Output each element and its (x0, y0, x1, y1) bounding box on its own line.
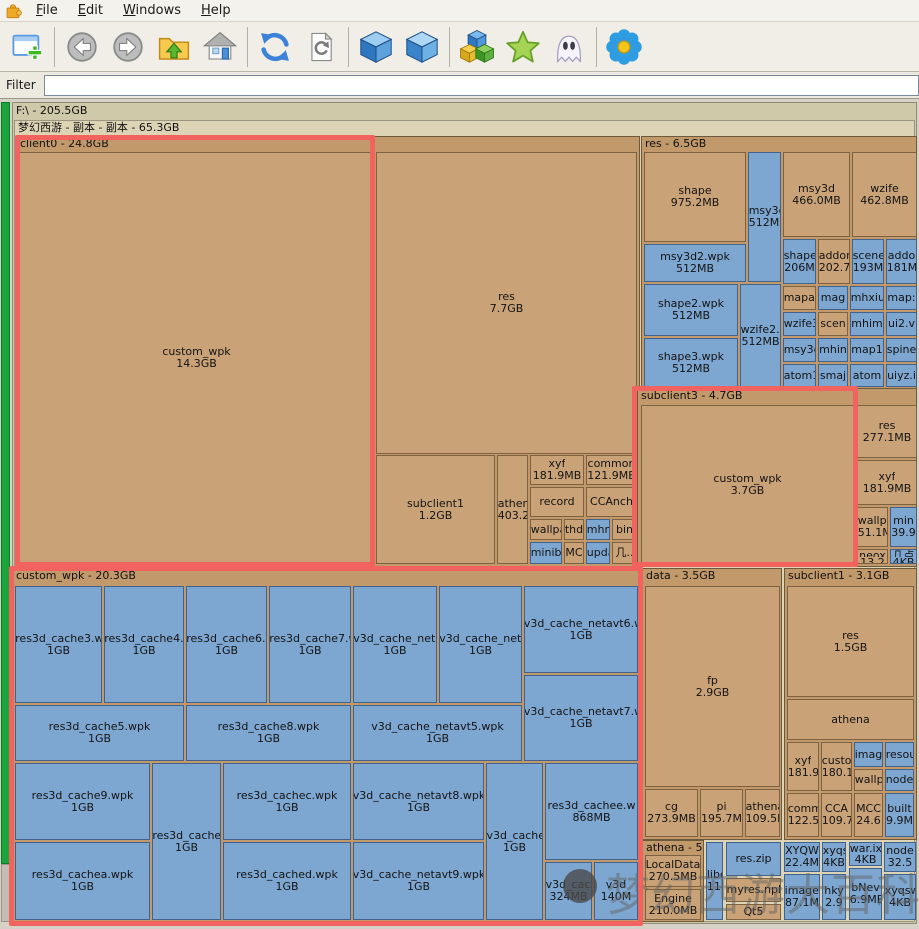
cell-label: scen (820, 318, 846, 330)
cell-size: 277.1MB (863, 432, 912, 444)
cell-label: smaj (820, 370, 846, 382)
cell-label: myres.npk (726, 884, 780, 896)
cell-label: custom_wpk (713, 473, 781, 485)
cell-size: 7.7GB (490, 303, 524, 315)
region-header-client0[interactable]: client0 - 24.8GB (17, 137, 639, 151)
menu-help[interactable]: Help (191, 1, 241, 20)
cell-subclient1-12[interactable]: subclient11.2GB (376, 455, 495, 564)
cell-res-7[interactable]: res7.7GB (376, 152, 637, 454)
cell-size: 1GB (426, 733, 449, 745)
cell-res3d-cache8[interactable]: res3d_cache8.wpk1GB (186, 705, 351, 761)
cell-label: v3d_cache (546, 879, 592, 891)
cell-msy3d2-wpk[interactable]: msy3d2.wpk512MB (644, 244, 746, 282)
cell-fp-29[interactable]: fp2.9GB (645, 586, 780, 787)
cell-label: map: (887, 292, 915, 304)
cell-label: MCC (856, 803, 881, 815)
document-refresh-icon (304, 30, 338, 64)
cell-label: v3d_cache_neta (439, 633, 522, 645)
cell-size: 195.7M (701, 813, 742, 825)
cell-label: bNev (851, 882, 880, 894)
cell-label: imagef (785, 885, 820, 897)
window-plus-icon (10, 30, 44, 64)
cell-label: upda (587, 547, 609, 559)
cell-size: 273.9MB (647, 813, 696, 825)
cell-athena-403[interactable]: athena403.2M (497, 455, 528, 564)
region-header-subclient1-b[interactable]: subclient1 - 3.1GB (785, 569, 916, 583)
cell-label: res3d_cache5.wpk (49, 721, 151, 733)
cell-label: resou (886, 749, 914, 761)
cell-res3d-cache3[interactable]: res3d_cache3.w1GB (15, 586, 102, 703)
cell-shape2-wpk[interactable]: shape2.wpk512MB (644, 284, 738, 336)
cell-size: 1GB (275, 881, 298, 893)
cell-label: Engine (654, 893, 692, 905)
cell-thd[interactable]: thd (564, 519, 584, 540)
cell-label: map1 (851, 344, 882, 356)
toolbar-separator (247, 27, 248, 67)
toolbar-separator (449, 27, 450, 67)
cell-xyf-181[interactable]: xyf181.9MB (530, 455, 584, 485)
cell-label: wallpa (858, 515, 888, 527)
cell-label: common (588, 458, 636, 470)
cell-size: 466.0MB (792, 195, 841, 207)
cell-neox-13[interactable]: neox13.2 (857, 549, 888, 564)
cell-label: res (879, 420, 896, 432)
cell-size: 109.7 (822, 815, 852, 827)
cell-mcc-24[interactable]: MCC24.6 (854, 793, 883, 837)
cell-label: res3d_cache9.wpk (32, 790, 134, 802)
cell-size: 4KB (889, 897, 911, 909)
cell-size: 512MB (672, 310, 710, 322)
region-header-drive-f[interactable]: F:\ - 205.5GB (13, 103, 916, 120)
cell-size: 1GB (407, 802, 430, 814)
cell-label: v3d_cache_netavt5.wpk (371, 721, 504, 733)
cell-size: 1GB (569, 630, 592, 642)
scan-progress-strip (1, 102, 10, 864)
cell-size: 868MB (572, 812, 610, 824)
cell-size: 6.9MB (850, 894, 882, 906)
cell-addor-202[interactable]: addor202.7 (818, 239, 850, 284)
cell-label: pi (716, 801, 726, 813)
cell-v3d-cache-mid[interactable]: v3d_cache_1GB (486, 763, 543, 920)
ghost-icon (551, 29, 587, 65)
cell-label: shape3.wpk (658, 351, 724, 363)
cell-xyf-181b[interactable]: xyf181.9MB (857, 460, 917, 505)
cell-label: wallp (855, 774, 883, 786)
cell-minibli[interactable]: minibli (530, 542, 562, 564)
cell-smaj[interactable]: smaj (818, 364, 848, 387)
cell-myres-npk[interactable]: myres.npk (726, 878, 781, 902)
refresh-selection-button[interactable] (298, 24, 344, 70)
cell-comm-122[interactable]: comm122.5 (787, 793, 819, 837)
new-view-button[interactable] (4, 24, 50, 70)
region-header-data[interactable]: data - 3.5GB (643, 569, 781, 583)
cell-size: 181.9 (788, 767, 819, 779)
cell-athena-b[interactable]: athena (787, 699, 914, 740)
filter-star-button[interactable] (500, 24, 546, 70)
blue-cube-icon (403, 28, 441, 66)
less-detail-button[interactable] (353, 24, 399, 70)
cell-label: node (886, 774, 913, 786)
cell-size: 2.9 (825, 897, 843, 909)
cell-size: 512MB (741, 336, 779, 348)
menu-edit[interactable]: Edit (68, 1, 113, 20)
cell-shape-975[interactable]: shape975.2MB (644, 152, 746, 242)
cell-label: war.ix (850, 843, 882, 854)
cell-label: CCAnch (590, 496, 633, 508)
cell-label: addo (888, 250, 915, 262)
cell-label: ui2.v (888, 318, 915, 330)
cell-label: v3d_cache_netavt7.w (524, 706, 638, 718)
cell-v3d-netavt5[interactable]: v3d_cache_netavt5.wpk1GB (353, 705, 522, 761)
cell-mhn[interactable]: mhn (586, 519, 610, 540)
cell-size: 1GB (503, 842, 526, 854)
cell-label: v3d_cache_netavt8.wpk (353, 790, 484, 802)
cell-label: min (893, 515, 914, 527)
cell-res3d-cache4[interactable]: res3d_cache4.w1GB (104, 586, 184, 703)
cell-size: 1GB (407, 881, 430, 893)
cell-size: 32.5 (888, 857, 913, 869)
cell-hky-29[interactable]: hky2.9 (822, 874, 846, 920)
cell-mc[interactable]: MC (564, 542, 584, 564)
cell-scene-193[interactable]: scene193M (852, 239, 884, 284)
cell-size: 109.5M (746, 813, 780, 825)
cell-res-15[interactable]: res1.5GB (787, 586, 914, 697)
cell-label: comm (788, 803, 819, 815)
cell-wallpa[interactable]: wallpa (530, 519, 562, 540)
green-star-icon (504, 28, 542, 66)
cell-addo-181[interactable]: addo181M (886, 239, 917, 284)
cell-size: 121.9MB (587, 470, 636, 482)
free-space-button[interactable] (454, 24, 500, 70)
cell-label: shape (678, 185, 711, 197)
cell-size: 1GB (175, 842, 198, 854)
cell-label: mhim (851, 318, 882, 330)
cell-label: addor (819, 250, 850, 262)
cell-label: custom_wpk (162, 346, 230, 358)
cell-mag[interactable]: mag (818, 286, 848, 310)
cell-label: msy3d (798, 183, 835, 195)
cell-res3d-cached[interactable]: res3d_cached.wpk1GB (223, 842, 351, 920)
forward-button[interactable] (105, 24, 151, 70)
cell-v3d-netavt7[interactable]: v3d_cache_netavt7.w1GB (524, 675, 638, 761)
cell-xyqs-4kb[interactable]: xyqs4KB (822, 842, 846, 872)
cell-war-ix[interactable]: war.ix4KB (849, 842, 882, 866)
cell-custom-wpk-37[interactable]: custom_wpk3.7GB (641, 405, 854, 564)
cell-size: 206M (784, 262, 815, 274)
cell-size: 140M (601, 891, 632, 903)
cell-size: 180.1 (822, 767, 852, 779)
cell-xyf-181c[interactable]: xyf181.9 (787, 742, 819, 791)
cell-label: MC (565, 547, 582, 559)
cell-res3d-cachec[interactable]: res3d_cachec.wpk1GB (223, 763, 351, 840)
cell-label: res3d_cache4.w (104, 633, 184, 645)
cell-libc[interactable]: libc114 (706, 842, 723, 920)
home-button[interactable] (197, 24, 243, 70)
cell-msy3d-466[interactable]: msy3d466.0MB (783, 152, 850, 237)
cell-label: mapan (784, 292, 816, 304)
cell-res-zip[interactable]: res.zip (726, 842, 781, 876)
cell-label: XYQW (785, 845, 819, 857)
cell-label: Qt5 (744, 906, 764, 918)
cell-xyqsw-4kb[interactable]: xyqsw4KB (884, 874, 916, 920)
cell-label: thd (565, 524, 583, 536)
cell-spine[interactable]: spine (886, 338, 917, 362)
cell-xyqw-224[interactable]: XYQW22.4M (784, 842, 820, 872)
cell-label: res3d_cachec.wpk (237, 790, 338, 802)
cell-res3d-cachee[interactable]: res3d_cachee.w868MB (545, 763, 638, 860)
cell-atom1[interactable]: atom1 (783, 364, 816, 387)
cell-size: 193M (853, 262, 884, 274)
cell-pi-195[interactable]: pi195.7M (700, 789, 743, 837)
cell-wzife2-w[interactable]: wzife2.v512MB (740, 284, 781, 387)
cell-upda[interactable]: upda (586, 542, 610, 564)
cell-size: 114 (707, 881, 722, 893)
cell-bnev-69[interactable]: bNev6.9MB (849, 868, 882, 920)
cell-label: msy3c (749, 205, 781, 217)
cell-label: res3d_cache3.w (15, 633, 102, 645)
cell-common-121[interactable]: common121.9MB (586, 455, 637, 485)
cell-label: imag (855, 749, 883, 761)
cell-size: 181.9MB (863, 483, 912, 495)
cell-label: wzife3 (784, 318, 816, 330)
filter-bar: Filter (0, 72, 919, 99)
cell-label: mhxiu (851, 292, 884, 304)
toolbar (0, 22, 919, 72)
refresh-icon (256, 28, 294, 66)
cell-res3d-cache5[interactable]: res3d_cache5.wpk1GB (15, 705, 184, 761)
cell-ji1[interactable]: 几.. (612, 542, 637, 564)
cell-label: xyf (795, 755, 812, 767)
cell-imagef-87[interactable]: imagef87.1M (784, 874, 820, 920)
cell-label: bin (616, 524, 633, 536)
cell-cg-273[interactable]: cg273.9MB (645, 789, 698, 837)
cell-label: athena (498, 498, 528, 510)
cell-label: custor (822, 755, 852, 767)
cell-label: v3d_cache_ (486, 830, 542, 842)
cell-node-325[interactable]: node32.5 (884, 842, 916, 872)
cell-node-b[interactable]: node (885, 769, 914, 791)
cell-v3d-140[interactable]: v3d140M (594, 862, 638, 920)
cell-label: mhin (819, 344, 847, 356)
cell-mhim[interactable]: mhim (850, 312, 884, 336)
cell-v3d-netavt8[interactable]: v3d_cache_netavt8.wpk1GB (353, 763, 484, 840)
cell-res3d-cachea[interactable]: res3d_cachea.wpk1GB (15, 842, 150, 920)
cell-size: 1GB (215, 645, 238, 657)
cell-qt5[interactable]: Qt5 (726, 904, 781, 920)
cell-label: mhn (587, 524, 609, 536)
cell-bin[interactable]: bin (612, 519, 637, 540)
back-button[interactable] (59, 24, 105, 70)
cell-ccanchor[interactable]: CCAnch (586, 487, 637, 517)
forward-arrow-icon (110, 29, 146, 65)
cell-res3d-cache7[interactable]: res3d_cache7.w1GB (269, 586, 351, 703)
cell-size: 1GB (275, 802, 298, 814)
cell-wallp[interactable]: wallp (854, 769, 883, 791)
cell-size: 122.5 (788, 815, 819, 827)
cell-label: wzife2.v (741, 324, 781, 336)
cell-size: 4KB (855, 854, 877, 865)
region-header-subclient3[interactable]: subclient3 - 4.7GB (638, 389, 916, 403)
cell-label: v3d_cache_neta (353, 633, 437, 645)
region-header-custom-wpk-20[interactable]: custom_wpk - 20.3GB (13, 569, 640, 583)
region-header-menghuan-folder[interactable]: 梦幻西游 - 副本 - 副本 - 65.3GB (15, 121, 914, 136)
cell-size: 462.8MB (860, 195, 909, 207)
region-header-res-top[interactable]: res - 6.5GB (642, 137, 916, 151)
cell-ui2[interactable]: ui2.v (886, 312, 917, 336)
cell-label: res3d_cache6.w (186, 633, 267, 645)
cell-size: 51.1M (858, 527, 888, 539)
cell-size: 1GB (71, 802, 94, 814)
cell-resou[interactable]: resou (885, 742, 914, 767)
cell-athena-109[interactable]: athena109.5M (745, 789, 780, 837)
cell-map1[interactable]: map1 (850, 338, 884, 362)
cell-size: 1GB (132, 645, 155, 657)
cell-label: shape (784, 250, 816, 262)
cell-label: athena (746, 801, 780, 813)
cell-label: res.zip (735, 853, 771, 865)
cell-size: 9.9M (886, 815, 913, 827)
cell-size: 3.7GB (731, 485, 765, 497)
cell-label: spine (887, 344, 917, 356)
cell-wzife3[interactable]: wzife3 (783, 312, 816, 336)
cell-custom-wpk-14[interactable]: custom_wpk14.3GB (19, 152, 374, 564)
puzzle-app-icon (4, 1, 24, 21)
ghost-button[interactable] (546, 24, 592, 70)
cell-label: xyf (549, 458, 566, 470)
cell-msy3d-s[interactable]: msy3d (783, 338, 816, 362)
cell-mhxiu[interactable]: mhxiu (850, 286, 884, 310)
cell-mapan[interactable]: mapan (783, 286, 816, 310)
cell-cca-109[interactable]: CCA109.7 (821, 793, 852, 837)
cell-res-277[interactable]: res277.1MB (857, 405, 917, 458)
cell-res3d-cache6[interactable]: res3d_cache6.w1GB (186, 586, 267, 703)
cell-size: 87.1M (785, 897, 819, 909)
more-detail-button[interactable] (399, 24, 445, 70)
cell-size: 403.2M (498, 510, 528, 522)
cell-size: 39.9 (891, 527, 916, 539)
cell-label: xyqs (823, 845, 845, 857)
cell-label: atom1 (784, 370, 816, 382)
cell-size: 181.9MB (533, 470, 582, 482)
region-header-athena-531[interactable]: athena - 531 (643, 841, 703, 855)
cell-size: 324MB (549, 891, 587, 903)
cell-uiyz[interactable]: uiyz.i (886, 364, 917, 387)
cell-label: subclient1 (407, 498, 464, 510)
cell-size: 1GB (47, 645, 70, 657)
cell-size: 14.3GB (176, 358, 217, 370)
cell-size: 1.5GB (834, 642, 868, 654)
cell-v3d-324[interactable]: v3d_cache324MB (545, 862, 592, 920)
cell-shape-206[interactable]: shape206M (783, 239, 816, 284)
cell-size: 975.2MB (671, 197, 720, 209)
cell-label: res3d_cachea.wpk (32, 869, 133, 881)
filter-input[interactable] (44, 75, 919, 96)
go-up-button[interactable] (151, 24, 197, 70)
cell-size: 202.7 (819, 262, 850, 274)
cell-ji2[interactable]: 几点4KB (890, 549, 917, 564)
cell-localdata[interactable]: LocalData270.5MB (645, 855, 701, 887)
cell-size: 181M (887, 262, 917, 274)
cell-mhin[interactable]: mhin (818, 338, 848, 362)
cell-label: CCA (825, 803, 848, 815)
cell-record[interactable]: record (530, 487, 584, 517)
cell-size: 1.2GB (419, 510, 453, 522)
cell-shape3-wpk[interactable]: shape3.wpk512MB (644, 338, 738, 387)
cell-v3d-netavt9[interactable]: v3d_cache_netavt9.wpk1GB (353, 842, 484, 920)
cell-label: libc (707, 869, 722, 881)
cell-v3d-neta-2[interactable]: v3d_cache_neta1GB (439, 586, 522, 703)
cell-size: 1GB (383, 645, 406, 657)
cell-size: 512MB (749, 217, 781, 229)
cell-label: xyf (879, 471, 896, 483)
cell-size: 22.4M (785, 857, 819, 869)
toolbar-separator (54, 27, 55, 67)
menu-file[interactable]: File (26, 1, 68, 20)
cell-res3d-cache9[interactable]: res3d_cache9.wpk1GB (15, 763, 150, 840)
cell-wallpa-51[interactable]: wallpa51.1M (857, 507, 888, 547)
colored-cubes-icon (458, 28, 496, 66)
menu-bar: File Edit Windows Help (0, 0, 919, 22)
cell-size: 4KB (893, 557, 915, 564)
menu-windows[interactable]: Windows (113, 1, 191, 20)
cell-label: record (539, 496, 574, 508)
cell-label: minibli (531, 547, 562, 559)
cell-v3d-neta-1[interactable]: v3d_cache_neta1GB (353, 586, 437, 703)
cell-label: built (887, 803, 911, 815)
cell-atom[interactable]: atom (850, 364, 884, 387)
cell-map2[interactable]: map: (886, 286, 917, 310)
toolbar-separator (596, 27, 597, 67)
cell-size: 13.2 (860, 557, 885, 564)
folder-up-icon (156, 29, 192, 65)
cell-label: res (498, 291, 515, 303)
cell-label: msy3d2.wpk (660, 251, 730, 263)
cell-label: atom (853, 370, 882, 382)
cell-label: hky (824, 885, 843, 897)
cell-wzife-462[interactable]: wzife462.8MB (852, 152, 917, 237)
toolbar-separator (348, 27, 349, 67)
cell-min-39[interactable]: min39.9 (890, 507, 917, 547)
cell-custor-180[interactable]: custor180.1 (821, 742, 852, 791)
cell-size: 1GB (569, 718, 592, 730)
cell-label: node (886, 845, 913, 857)
scan-progress-strip-end (1, 864, 10, 922)
treemap-canvas[interactable]: F:\ - 205.5GB梦幻西游 - 副本 - 副本 - 65.3GBclie… (0, 99, 919, 928)
cell-scen[interactable]: scen (818, 312, 848, 336)
cell-v3d-netavt6[interactable]: v3d_cache_netavt6.w1GB (524, 586, 638, 673)
cell-label: v3d_cache_netavt9.wpk (353, 869, 484, 881)
cell-label: athena (831, 714, 870, 726)
options-button[interactable] (601, 24, 647, 70)
cell-size: 24.6 (856, 815, 881, 827)
cell-label: 几.. (616, 547, 634, 559)
cell-msy3c-512[interactable]: msy3c512MB (748, 152, 781, 282)
blue-cube-icon (357, 28, 395, 66)
cell-size: 1GB (88, 733, 111, 745)
cell-label: res (842, 630, 859, 642)
cell-built-99[interactable]: built9.9M (885, 793, 914, 837)
cell-label: shape2.wpk (658, 298, 724, 310)
cell-engine[interactable]: Engine210.0MB (645, 889, 701, 920)
cell-size: 2.9GB (696, 687, 730, 699)
cell-size: 270.5MB (649, 871, 698, 883)
cell-size: 512MB (672, 363, 710, 375)
cell-size: 4KB (823, 857, 845, 869)
rescan-button[interactable] (252, 24, 298, 70)
cell-label: uiyz.i (887, 370, 916, 382)
cell-res3d-cache-mid[interactable]: res3d_cache1GB (152, 763, 221, 920)
cell-imag[interactable]: imag (854, 742, 883, 767)
